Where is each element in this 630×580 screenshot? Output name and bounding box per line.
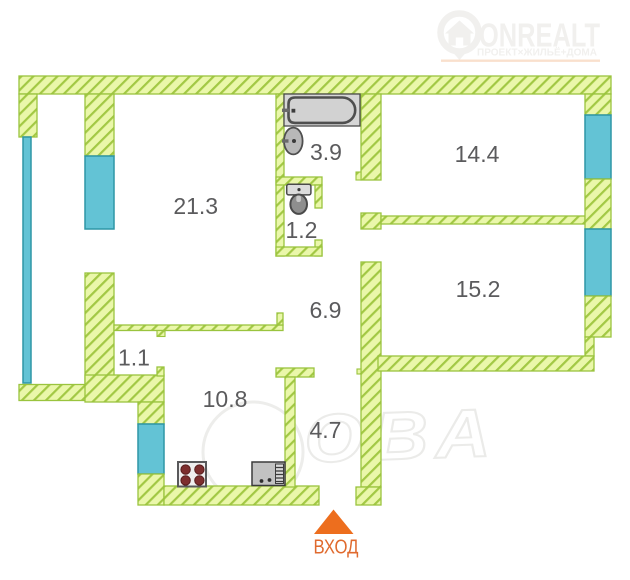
svg-text:15.2: 15.2 bbox=[456, 276, 501, 302]
svg-text:4.7: 4.7 bbox=[310, 417, 342, 443]
svg-text:21.3: 21.3 bbox=[173, 193, 218, 219]
svg-text:6.9: 6.9 bbox=[310, 297, 342, 323]
svg-text:1.1: 1.1 bbox=[118, 345, 150, 371]
svg-text:10.8: 10.8 bbox=[203, 386, 248, 412]
svg-text:14.4: 14.4 bbox=[455, 141, 500, 167]
svg-text:3.9: 3.9 bbox=[310, 139, 342, 165]
svg-text:ВХОД: ВХОД bbox=[314, 536, 359, 559]
svg-text:1.2: 1.2 bbox=[286, 217, 318, 243]
svg-text:ПРОЕКТ×ЖИЛЬЁ+ДОМА: ПРОЕКТ×ЖИЛЬЁ+ДОМА bbox=[477, 46, 597, 59]
